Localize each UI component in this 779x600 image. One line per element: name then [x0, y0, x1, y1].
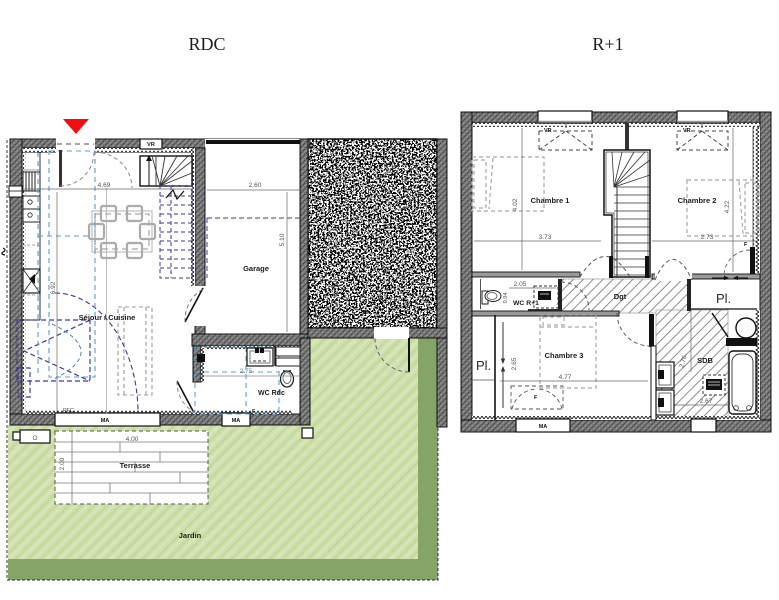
- svg-text:Chambre 1: Chambre 1: [531, 196, 570, 205]
- svg-text:2.60: 2.60: [249, 182, 262, 189]
- svg-text:WC Rdc: WC Rdc: [258, 390, 285, 397]
- svg-text:Pl.: Pl.: [476, 358, 491, 373]
- svg-text:2.67: 2.67: [700, 398, 713, 405]
- svg-text:Séjour / Cuisine: Séjour / Cuisine: [79, 313, 136, 322]
- svg-text:Pl.: Pl.: [716, 291, 731, 306]
- svg-text:4.69: 4.69: [98, 182, 111, 189]
- svg-text:4.02: 4.02: [512, 198, 519, 211]
- svg-text:Garage: Garage: [243, 264, 269, 273]
- svg-text:R+1: R+1: [592, 34, 623, 54]
- svg-text:RDC: RDC: [188, 34, 225, 54]
- svg-text:4.00: 4.00: [126, 436, 139, 443]
- svg-text:PFC: PFC: [63, 408, 74, 414]
- svg-text:WC R+1: WC R+1: [513, 300, 539, 307]
- svg-text:Jardin: Jardin: [179, 531, 202, 540]
- svg-text:2.00: 2.00: [59, 457, 66, 470]
- svg-text:6.92: 6.92: [50, 281, 57, 294]
- svg-text:2.73: 2.73: [701, 234, 714, 241]
- svg-text:Dgt: Dgt: [614, 292, 627, 301]
- svg-text:Chambre 2: Chambre 2: [678, 196, 717, 205]
- svg-text:4.77: 4.77: [559, 374, 572, 381]
- svg-text:MA: MA: [539, 424, 548, 430]
- svg-text:MA: MA: [232, 418, 241, 424]
- svg-text:Terrasse: Terrasse: [120, 461, 151, 470]
- svg-text:VR: VR: [147, 142, 155, 148]
- svg-text:0.94: 0.94: [503, 293, 509, 304]
- svg-text:2.65: 2.65: [511, 357, 518, 370]
- svg-text:2.05: 2.05: [514, 281, 527, 288]
- svg-text:MA: MA: [101, 418, 110, 424]
- svg-text:3.73: 3.73: [539, 234, 552, 241]
- svg-text:O: O: [32, 435, 37, 442]
- svg-text:4.22: 4.22: [724, 200, 731, 213]
- svg-text:SDB: SDB: [697, 356, 713, 365]
- svg-text:2.75: 2.75: [240, 368, 253, 375]
- svg-text:5.10: 5.10: [279, 233, 286, 246]
- svg-text:Chambre 3: Chambre 3: [545, 351, 584, 360]
